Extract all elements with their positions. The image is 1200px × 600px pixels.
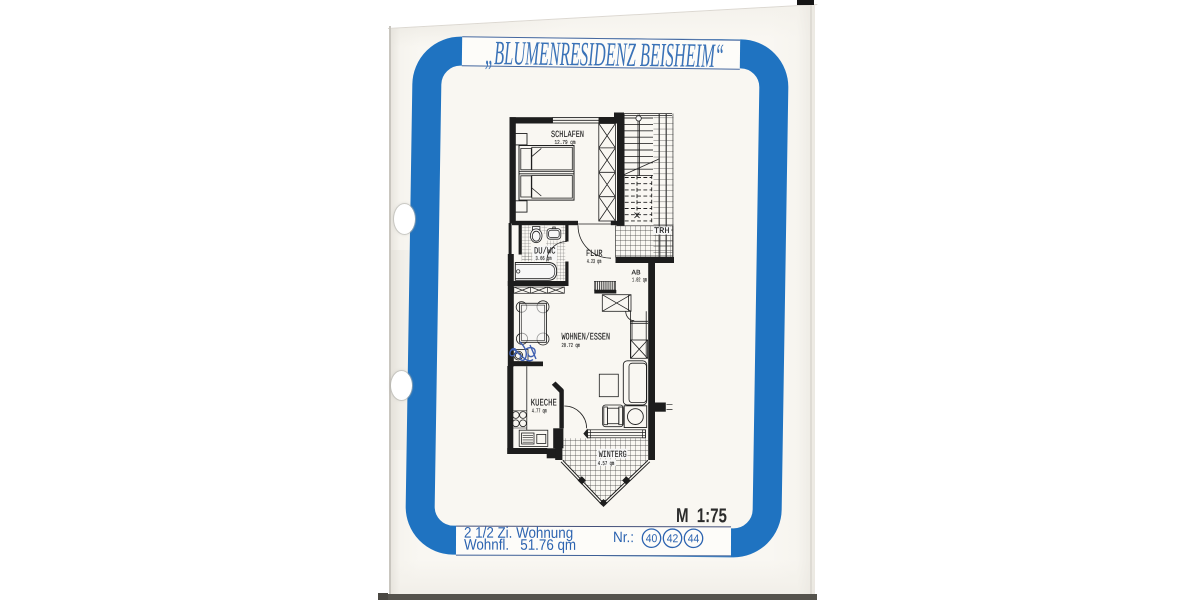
svg-text:40: 40 [645,533,657,545]
svg-text:4.77 qm: 4.77 qm [532,407,547,414]
svg-text:42: 42 [666,533,678,545]
svg-text:4.57 qm: 4.57 qm [598,460,615,467]
svg-text:„BLUMENRESIDENZ BEISHEIM“: „BLUMENRESIDENZ BEISHEIM“ [485,35,724,75]
svg-text:44: 44 [687,533,699,545]
svg-text:4.23 qm: 4.23 qm [587,258,602,265]
svg-text:12.79 qm: 12.79 qm [555,139,576,146]
svg-text:20.72 qm: 20.72 qm [562,342,581,349]
svg-text:1.02 qm: 1.02 qm [632,276,647,283]
svg-text:WINTERG: WINTERG [599,449,627,460]
svg-text:3.66 qm: 3.66 qm [536,255,552,262]
svg-text:TRH: TRH [654,226,670,236]
